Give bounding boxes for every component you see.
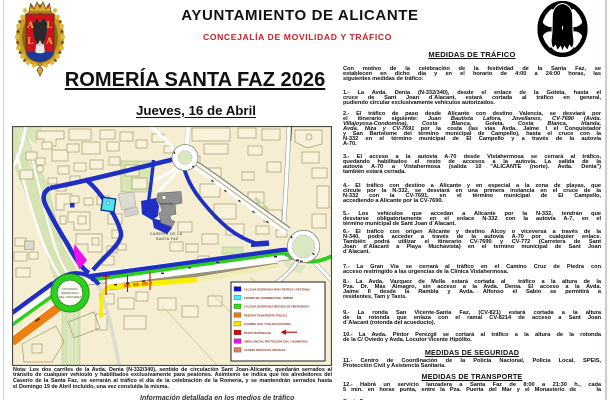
svg-text:L: L bbox=[27, 36, 33, 46]
svg-text:A: A bbox=[46, 36, 53, 46]
svg-text:CALZADA RESERVADA SERVICIO DE: CALZADA RESERVADA SERVICIO DE EMERGENCIA bbox=[244, 305, 309, 309]
svg-text:SANTA FAZ: SANTA FAZ bbox=[156, 237, 179, 241]
svg-text:A: A bbox=[27, 20, 34, 30]
svg-text:CASERIO DE LA: CASERIO DE LA bbox=[150, 232, 183, 236]
svg-text:DEL JUNCARET: DEL JUNCARET bbox=[59, 295, 82, 299]
svg-text:GUARDIA CIVIL Y POLICIA NACION: GUARDIA CIVIL Y POLICIA NACIONAL bbox=[244, 322, 292, 326]
svg-text:MONASTERIO: MONASTERIO bbox=[159, 203, 174, 206]
svg-text:L: L bbox=[46, 20, 52, 30]
svg-text:PASOS PEATONALES: PASOS PEATONALES bbox=[244, 331, 271, 335]
